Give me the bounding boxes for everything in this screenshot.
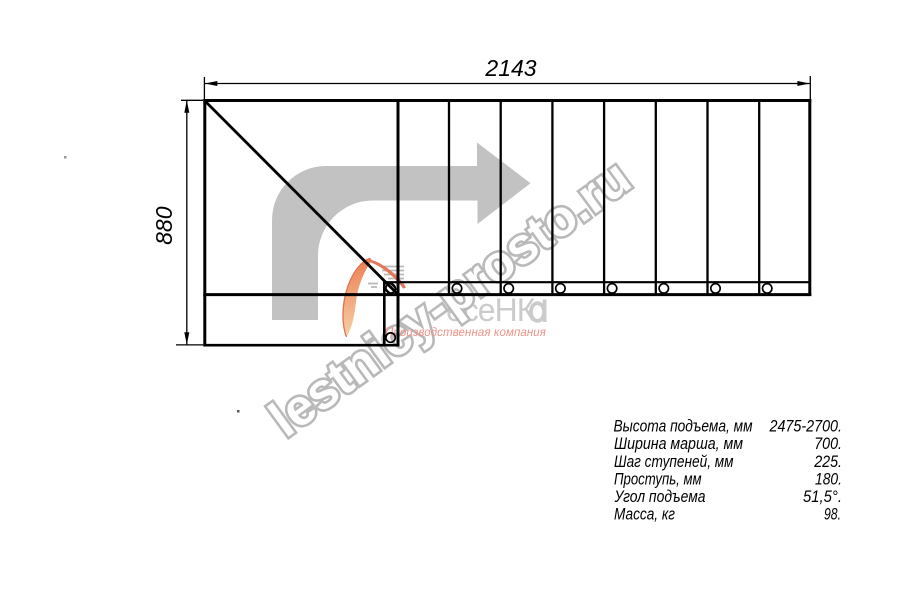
svg-text:Ширина марша, мм: Ширина марша, мм bbox=[614, 435, 743, 453]
svg-text:Высота подъема, мм: Высота подъема, мм bbox=[614, 418, 753, 436]
svg-text:Масса, кг: Масса, кг bbox=[614, 506, 675, 524]
svg-text:2475-2700.: 2475-2700. bbox=[769, 418, 842, 436]
svg-text:2143: 2143 bbox=[484, 55, 536, 81]
svg-text:880: 880 bbox=[151, 206, 177, 245]
svg-text:Шаг ступеней, мм: Шаг ступеней, мм bbox=[614, 453, 734, 471]
svg-text:Угол подъема: Угол подъема bbox=[614, 488, 706, 506]
svg-text:98.: 98. bbox=[824, 506, 841, 524]
svg-text:225.: 225. bbox=[813, 453, 842, 471]
svg-text:180.: 180. bbox=[815, 470, 842, 488]
svg-text:Производственная компания: Производственная компания bbox=[385, 327, 546, 339]
svg-text:700.: 700. bbox=[814, 435, 842, 453]
svg-text:Проступь, мм: Проступь, мм bbox=[614, 470, 702, 488]
svg-text:51,5°.: 51,5°. bbox=[803, 488, 842, 506]
